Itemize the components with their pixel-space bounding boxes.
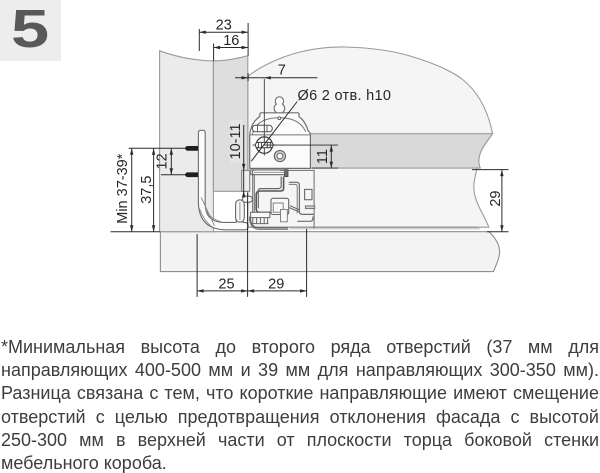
svg-text:12: 12 bbox=[154, 153, 170, 169]
svg-text:16: 16 bbox=[223, 33, 239, 49]
svg-text:10-11: 10-11 bbox=[228, 123, 244, 159]
svg-text:29: 29 bbox=[268, 276, 284, 292]
svg-text:Min 37-39*: Min 37-39* bbox=[115, 153, 131, 223]
svg-text:Ø6 2 отв. h10: Ø6 2 отв. h10 bbox=[298, 88, 392, 104]
svg-text:11: 11 bbox=[315, 149, 331, 164]
svg-text:37,5: 37,5 bbox=[139, 176, 155, 204]
svg-text:29: 29 bbox=[488, 191, 504, 207]
svg-text:25: 25 bbox=[218, 276, 234, 292]
svg-text:7: 7 bbox=[278, 63, 286, 79]
svg-text:23: 23 bbox=[216, 18, 232, 34]
